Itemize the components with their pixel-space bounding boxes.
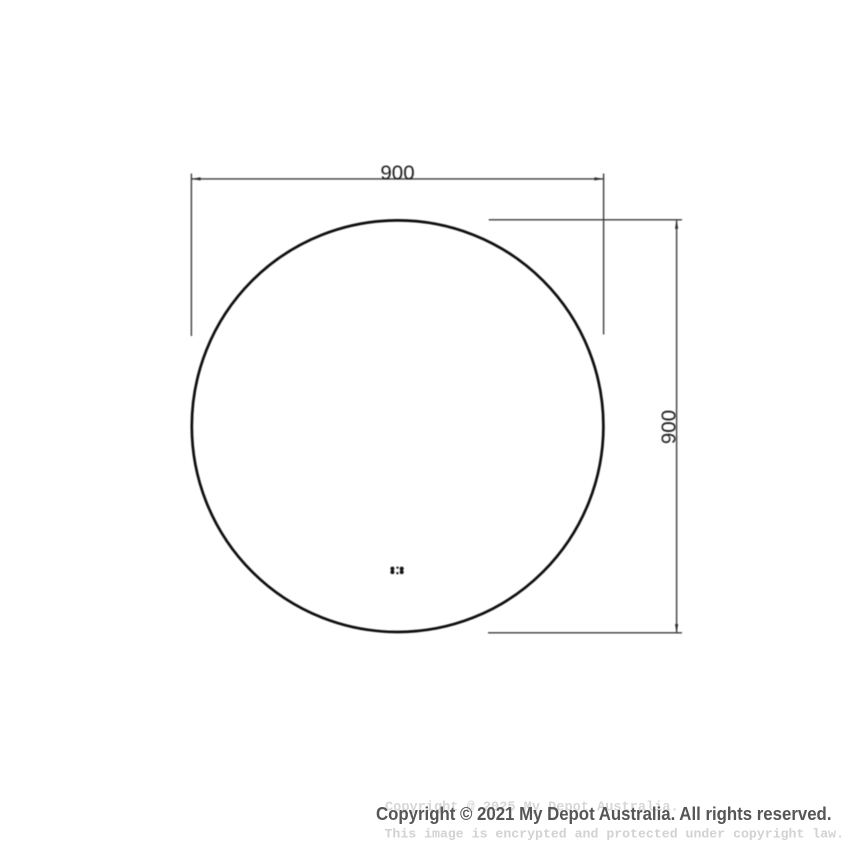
svg-text:900: 900 xyxy=(657,410,680,444)
svg-text:Copyright © 2021 My Depot Aust: Copyright © 2021 My Depot Australia. All… xyxy=(376,803,832,824)
svg-text:This image is encrypted and pr: This image is encrypted and protected un… xyxy=(385,827,845,842)
svg-text:900: 900 xyxy=(380,161,414,184)
